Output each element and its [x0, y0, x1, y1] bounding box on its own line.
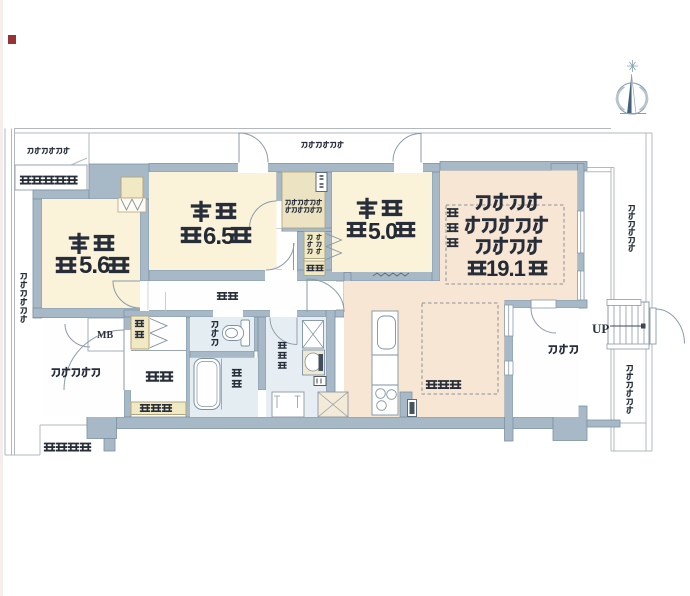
svg-text:19.1: 19.1: [486, 256, 526, 281]
svg-text:6.5: 6.5: [203, 223, 234, 250]
svg-text:5.6: 5.6: [79, 252, 110, 279]
svg-text:MB: MB: [97, 330, 113, 341]
svg-text:UP: UP: [592, 321, 609, 336]
svg-text:5.0: 5.0: [368, 218, 397, 244]
